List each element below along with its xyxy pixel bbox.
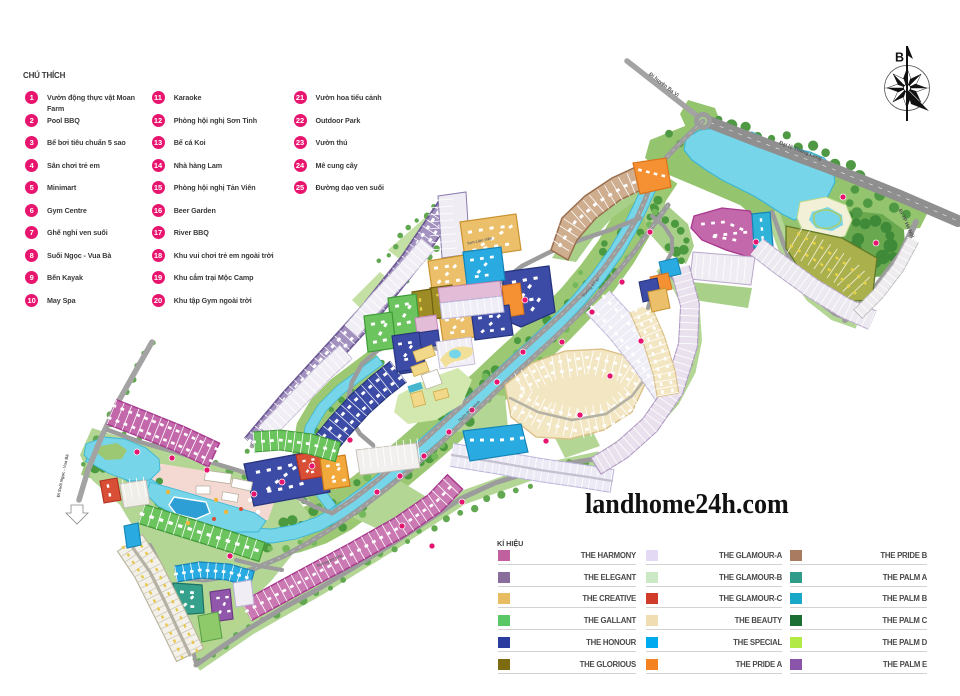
svg-text:Đi Suối Ngọc - Vua Bà: Đi Suối Ngọc - Vua Bà: [56, 453, 70, 498]
svg-text:Đi huyện Ba Vì: Đi huyện Ba Vì: [647, 72, 680, 99]
svg-text:B: B: [895, 51, 904, 65]
